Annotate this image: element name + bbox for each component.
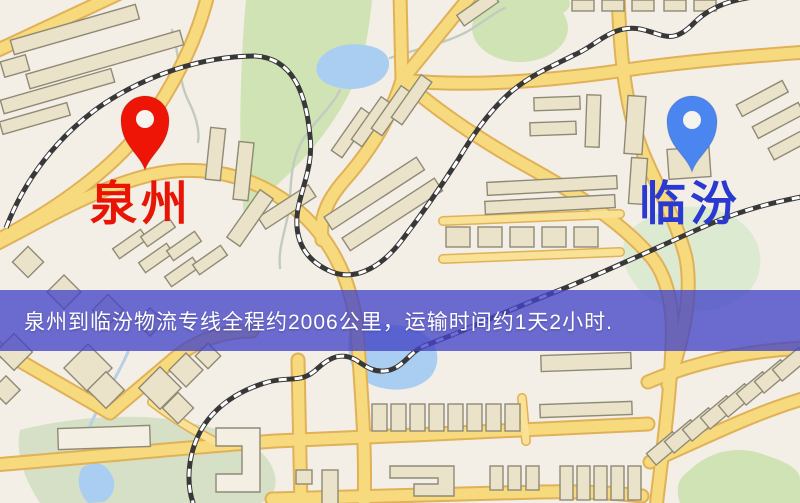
origin-label: 泉州 bbox=[90, 177, 192, 230]
red-map-pin-hole bbox=[136, 110, 154, 128]
route-info-text: 泉州到临汾物流专线全程约2006公里，运输时间约1天2小时. bbox=[24, 306, 613, 336]
route-info-banner: 泉州到临汾物流专线全程约2006公里，运输时间约1天2小时. bbox=[0, 290, 800, 351]
blue-map-pin-hole bbox=[683, 111, 701, 129]
map-viewport: 泉州 临汾 泉州到临汾物流专线全程约2006公里，运输时间约1天2小时. bbox=[0, 0, 800, 503]
map-canvas: 泉州 临汾 bbox=[0, 0, 800, 503]
destination-label: 临汾 bbox=[639, 177, 741, 230]
